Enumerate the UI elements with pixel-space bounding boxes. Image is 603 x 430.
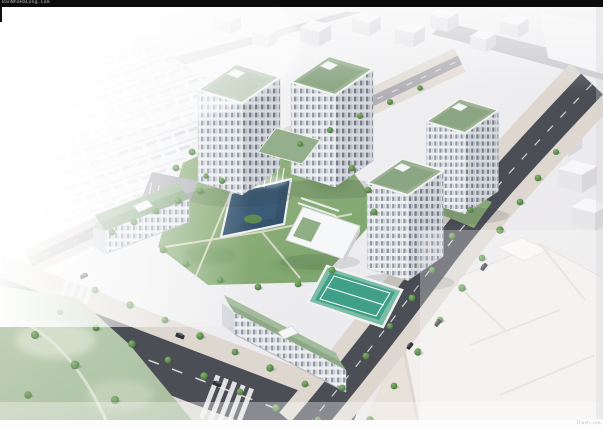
screenshot-root: BanNhaHaLong.Com Thanh.com [0, 0, 603, 430]
watermark-text-bottom: Thanh.com [576, 420, 600, 425]
architectural-rendering [0, 0, 603, 430]
bottom-margin: Thanh.com [0, 420, 603, 430]
watermark-bar: BanNhaHaLong.Com [0, 0, 603, 7]
watermark-text-top: BanNhaHaLong.Com [2, 0, 50, 5]
